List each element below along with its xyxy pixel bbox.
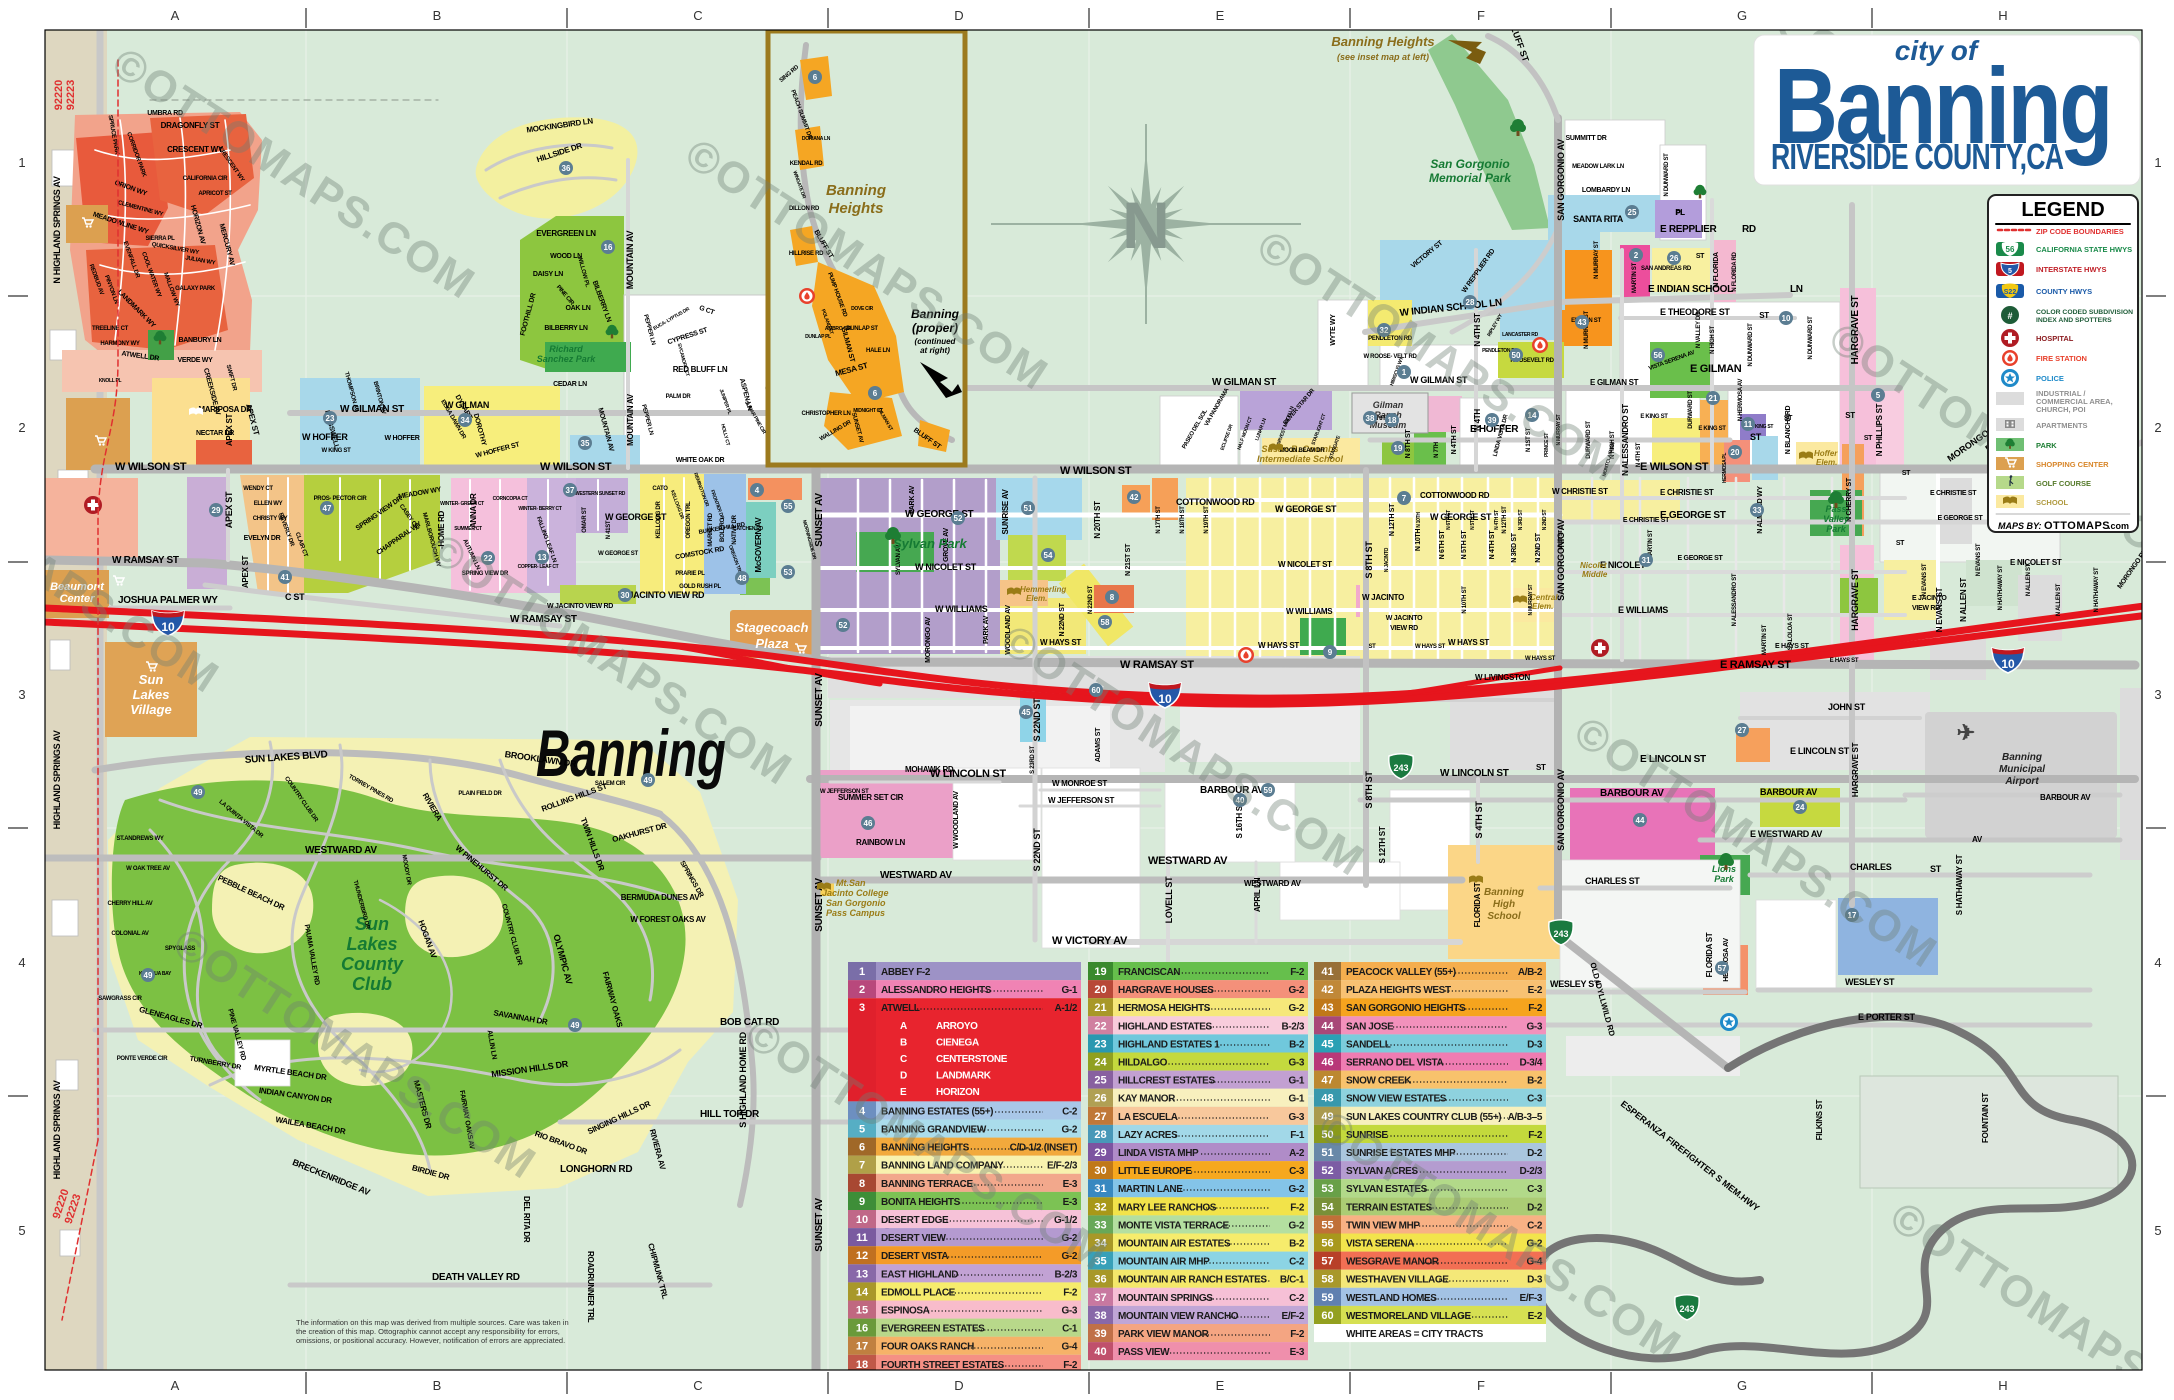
svg-text:PASS VIEW: PASS VIEW xyxy=(1118,1347,1170,1358)
svg-text:SANDELL: SANDELL xyxy=(1346,1039,1391,1050)
svg-text:N ALLEN ST: N ALLEN ST xyxy=(2026,563,2032,596)
svg-text:B: B xyxy=(433,1378,442,1393)
svg-text:TREELINE CT: TREELINE CT xyxy=(92,326,129,332)
svg-text:at right): at right) xyxy=(920,346,950,355)
svg-text:42: 42 xyxy=(1130,493,1139,502)
svg-text:E GEORGE ST: E GEORGE ST xyxy=(1660,510,1726,521)
svg-text:SUNRISE AV: SUNRISE AV xyxy=(1001,489,1010,535)
svg-text:Gilman: Gilman xyxy=(1373,400,1404,410)
svg-text:N 4TH ST: N 4TH ST xyxy=(1473,313,1482,347)
svg-text:N 10TH: N 10TH xyxy=(1415,529,1422,552)
svg-text:W GILMAN ST: W GILMAN ST xyxy=(1212,377,1276,388)
svg-text:S 4TH ST: S 4TH ST xyxy=(1474,801,1484,839)
svg-text:KAY MANOR: KAY MANOR xyxy=(1118,1094,1176,1105)
svg-text:E CHRISTIE ST: E CHRISTIE ST xyxy=(1660,488,1714,497)
svg-text:E REPPLIER: E REPPLIER xyxy=(1660,224,1718,235)
svg-text:Sanchez Park: Sanchez Park xyxy=(537,354,597,364)
svg-text:13: 13 xyxy=(856,1268,868,1280)
svg-text:HERMOSA PL: HERMOSA PL xyxy=(1722,453,1728,483)
svg-text:COTTONWOOD RD: COTTONWOOD RD xyxy=(1176,497,1255,507)
svg-text:37: 37 xyxy=(566,486,575,495)
svg-text:B: B xyxy=(900,1038,907,1049)
svg-text:W NICOLET ST: W NICOLET ST xyxy=(915,562,977,572)
svg-text:G-4: G-4 xyxy=(1062,1342,1078,1353)
svg-text:N 6TH ST: N 6TH ST xyxy=(1446,510,1452,530)
svg-text:G-2: G-2 xyxy=(1062,1125,1078,1136)
svg-text:FIRE STATION: FIRE STATION xyxy=(2036,354,2087,363)
svg-text:Nicolet: Nicolet xyxy=(1580,561,1607,570)
svg-text:31: 31 xyxy=(1642,556,1651,565)
svg-text:B-2: B-2 xyxy=(1289,1039,1305,1050)
svg-text:N 12TH ST: N 12TH ST xyxy=(1502,506,1508,534)
svg-text:CHARLES ST: CHARLES ST xyxy=(1585,876,1640,886)
svg-text:W HAYS ST: W HAYS ST xyxy=(1415,644,1446,650)
svg-text:F-2: F-2 xyxy=(1290,967,1305,978)
svg-text:N 19TH ST: N 19TH ST xyxy=(1204,506,1210,534)
svg-text:E RAMSAY ST: E RAMSAY ST xyxy=(1720,659,1791,671)
svg-text:PALM DR: PALM DR xyxy=(666,394,692,400)
svg-text:TWIN VIEW MHP: TWIN VIEW MHP xyxy=(1346,1220,1420,1231)
svg-text:N 7TH: N 7TH xyxy=(1434,442,1440,458)
svg-text:W WILSON ST: W WILSON ST xyxy=(1060,465,1132,477)
svg-text:1: 1 xyxy=(2154,155,2161,170)
svg-text:Banning: Banning xyxy=(1484,887,1524,898)
svg-text:18: 18 xyxy=(856,1359,868,1371)
svg-text:11: 11 xyxy=(1744,420,1753,429)
svg-text:E PORTER ST: E PORTER ST xyxy=(1858,1012,1916,1022)
svg-text:SUNSET AV: SUNSET AV xyxy=(814,673,825,727)
svg-text:E-3: E-3 xyxy=(1290,1347,1305,1358)
svg-text:ST: ST xyxy=(1784,415,1793,422)
svg-text:FILKINS ST: FILKINS ST xyxy=(1815,1099,1824,1140)
svg-text:56: 56 xyxy=(1654,351,1663,360)
svg-text:SAN GORGONIO AV: SAN GORGONIO AV xyxy=(1556,139,1566,221)
svg-text:WENDY CT: WENDY CT xyxy=(243,486,273,492)
svg-text:CORNCOPIA CT: CORNCOPIA CT xyxy=(493,496,528,502)
svg-text:E KING ST: E KING ST xyxy=(1640,414,1668,420)
svg-text:SHOPPING CENTER: SHOPPING CENTER xyxy=(2036,460,2109,469)
svg-text:D-2/3: D-2/3 xyxy=(1520,1166,1543,1177)
svg-text:A-2: A-2 xyxy=(1289,1148,1305,1159)
svg-text:ST: ST xyxy=(1536,763,1546,772)
svg-text:CIENEGA: CIENEGA xyxy=(936,1038,979,1049)
svg-text:Park: Park xyxy=(1714,874,1735,884)
svg-text:BARBOUR AV: BARBOUR AV xyxy=(1760,787,1817,797)
svg-text:8: 8 xyxy=(859,1178,865,1190)
svg-text:11: 11 xyxy=(856,1232,868,1244)
svg-text:Sun: Sun xyxy=(355,914,389,934)
svg-text:B-2: B-2 xyxy=(1527,1076,1543,1087)
svg-text:S HATHAWAY ST: S HATHAWAY ST xyxy=(1955,854,1964,915)
svg-text:RD: RD xyxy=(1742,224,1756,235)
svg-text:N 18TH ST: N 18TH ST xyxy=(1180,506,1186,534)
svg-text:San Gorgonio: San Gorgonio xyxy=(826,898,886,908)
svg-text:27: 27 xyxy=(1738,726,1747,735)
svg-text:E WILSON ST: E WILSON ST xyxy=(1640,461,1709,473)
svg-text:OAK LN: OAK LN xyxy=(565,305,590,312)
svg-text:PARK AV: PARK AV xyxy=(983,615,990,644)
svg-text:37: 37 xyxy=(1094,1292,1106,1304)
svg-text:LEGEND: LEGEND xyxy=(2021,199,2104,221)
svg-text:PROS- PECTOR CIR: PROS- PECTOR CIR xyxy=(314,496,368,502)
svg-text:N EVANS ST: N EVANS ST xyxy=(1922,563,1928,596)
svg-text:HARMONY WY: HARMONY WY xyxy=(100,341,140,347)
svg-text:HARGRAVE ST: HARGRAVE ST xyxy=(1851,742,1860,797)
svg-text:E GEORGE ST: E GEORGE ST xyxy=(1678,555,1724,562)
svg-text:40: 40 xyxy=(1094,1346,1106,1358)
svg-text:7: 7 xyxy=(1402,494,1407,503)
svg-text:G-3: G-3 xyxy=(1289,1112,1305,1123)
svg-text:DEATH VALLEY RD: DEATH VALLEY RD xyxy=(432,1272,520,1283)
svg-text:N FLORIDA RD: N FLORIDA RD xyxy=(1732,251,1738,291)
svg-text:WESTWARD AV: WESTWARD AV xyxy=(305,845,377,856)
svg-text:S 22ND ST: S 22ND ST xyxy=(1032,698,1042,742)
svg-text:42: 42 xyxy=(1321,984,1333,996)
svg-text:E-2: E-2 xyxy=(1528,1311,1543,1322)
svg-text:PARK AV: PARK AV xyxy=(909,485,916,514)
svg-text:E NICOLET ST: E NICOLET ST xyxy=(2010,558,2062,567)
svg-text:C-3: C-3 xyxy=(1527,1184,1543,1195)
svg-text:BILBERRY LN: BILBERRY LN xyxy=(544,325,588,332)
svg-text:F-2: F-2 xyxy=(1528,1130,1543,1141)
svg-text:N PHILLIPS ST: N PHILLIPS ST xyxy=(1875,403,1884,456)
svg-text:LAZY ACRES: LAZY ACRES xyxy=(1118,1130,1178,1141)
svg-text:BERMUDA DUNES AV: BERMUDA DUNES AV xyxy=(621,893,700,902)
svg-text:27: 27 xyxy=(1094,1111,1106,1123)
svg-text:LOMBARDY LN: LOMBARDY LN xyxy=(1582,187,1631,194)
svg-text:HILL TOP DR: HILL TOP DR xyxy=(700,1109,760,1120)
svg-text:WHITE OAK DR: WHITE OAK DR xyxy=(676,457,725,464)
svg-text:PONTE VERDE CIR: PONTE VERDE CIR xyxy=(117,1056,168,1062)
svg-text:SAN ANDREAS RD: SAN ANDREAS RD xyxy=(1641,266,1692,272)
svg-text:SALEM CIR: SALEM CIR xyxy=(595,781,626,787)
svg-text:MOUNTAIN AV: MOUNTAIN AV xyxy=(626,393,635,446)
svg-text:Banning: Banning xyxy=(2002,752,2042,763)
svg-text:W NICOLET ST: W NICOLET ST xyxy=(1278,560,1332,569)
svg-text:3: 3 xyxy=(2154,687,2161,702)
svg-text:G-3: G-3 xyxy=(1062,1306,1078,1317)
svg-text:N 10TH ST: N 10TH ST xyxy=(1462,586,1468,614)
svg-text:8: 8 xyxy=(1110,593,1115,602)
svg-text:W JEFFERSON ST: W JEFFERSON ST xyxy=(1048,796,1114,805)
svg-text:N 1ST ST: N 1ST ST xyxy=(1558,530,1564,550)
svg-text:E CHRISTIE ST: E CHRISTIE ST xyxy=(1930,490,1977,497)
svg-text:RAINBOW LN: RAINBOW LN xyxy=(856,838,906,847)
svg-text:18: 18 xyxy=(1388,416,1397,425)
svg-text:MOUNTAIN AV: MOUNTAIN AV xyxy=(625,230,635,289)
svg-text:LA ESCUELA: LA ESCUELA xyxy=(1118,1112,1178,1123)
svg-text:W HAYS ST: W HAYS ST xyxy=(1525,656,1556,662)
svg-text:30: 30 xyxy=(621,591,630,600)
svg-text:57: 57 xyxy=(1321,1256,1333,1268)
svg-text:12: 12 xyxy=(856,1250,868,1262)
svg-text:A-1/2: A-1/2 xyxy=(1055,1003,1078,1014)
svg-text:32: 32 xyxy=(1094,1201,1106,1213)
svg-text:Elem.: Elem. xyxy=(1816,458,1837,467)
svg-text:ROADRUNNER TRL: ROADRUNNER TRL xyxy=(586,1251,595,1323)
svg-text:F: F xyxy=(1477,1378,1485,1393)
svg-text:D-2: D-2 xyxy=(1527,1148,1543,1159)
svg-text:MOHAWK RD: MOHAWK RD xyxy=(905,765,954,774)
svg-text:D-3: D-3 xyxy=(1527,1039,1543,1050)
svg-text:14: 14 xyxy=(856,1286,869,1298)
svg-text:G-3: G-3 xyxy=(1289,1058,1305,1069)
svg-text:W VICTORY AV: W VICTORY AV xyxy=(1052,935,1128,947)
svg-text:SCHOOL: SCHOOL xyxy=(2036,498,2069,507)
svg-text:PEACOCK VALLEY (55+): PEACOCK VALLEY (55+) xyxy=(1346,967,1456,978)
svg-text:A: A xyxy=(171,1378,180,1393)
svg-text:17: 17 xyxy=(856,1341,868,1353)
svg-text:Village: Village xyxy=(130,702,171,717)
svg-text:B/C-1: B/C-1 xyxy=(1280,1275,1305,1286)
svg-text:S 8TH ST: S 8TH ST xyxy=(1364,771,1374,809)
svg-text:OREGON TRL: OREGON TRL xyxy=(686,501,692,539)
svg-text:MOUNTAIN AIR RANCH ESTATES: MOUNTAIN AIR RANCH ESTATES xyxy=(1118,1275,1267,1286)
svg-text:W KING ST: W KING ST xyxy=(322,448,352,454)
svg-text:ALESSANDRO HEIGHTS: ALESSANDRO HEIGHTS xyxy=(881,985,992,996)
svg-text:COLONIAL AV: COLONIAL AV xyxy=(111,931,149,937)
svg-text:HILLCREST ESTATES: HILLCREST ESTATES xyxy=(1118,1076,1215,1087)
svg-text:24: 24 xyxy=(1796,803,1805,812)
svg-text:49: 49 xyxy=(144,971,153,980)
svg-text:✈: ✈ xyxy=(1957,720,1975,745)
svg-text:C: C xyxy=(900,1054,907,1065)
svg-text:Banning: Banning xyxy=(826,182,886,199)
svg-text:G-2: G-2 xyxy=(1289,1003,1305,1014)
svg-text:WESTERN SUNSET RD: WESTERN SUNSET RD xyxy=(575,491,626,497)
svg-text:G-2: G-2 xyxy=(1289,1184,1305,1195)
svg-text:W LIVINGSTON: W LIVINGSTON xyxy=(1475,673,1530,682)
svg-text:N HATHAWAY ST: N HATHAWAY ST xyxy=(1998,565,2004,610)
svg-text:19: 19 xyxy=(1094,966,1106,978)
svg-text:High: High xyxy=(1493,899,1515,910)
svg-text:D: D xyxy=(954,8,963,23)
svg-text:CALIFORNIA CIR: CALIFORNIA CIR xyxy=(183,176,229,182)
svg-text:W WILLIAMS: W WILLIAMS xyxy=(935,604,988,614)
svg-text:W RAMSAY ST: W RAMSAY ST xyxy=(112,555,179,566)
svg-text:WESLEY ST: WESLEY ST xyxy=(1845,977,1895,987)
svg-text:Park: Park xyxy=(1826,524,1847,534)
svg-text:G-1: G-1 xyxy=(1062,985,1078,996)
svg-text:EAST HIGHLAND: EAST HIGHLAND xyxy=(881,1269,958,1280)
svg-text:19: 19 xyxy=(1394,444,1403,453)
svg-text:SAN GORGONIO AV: SAN GORGONIO AV xyxy=(1556,769,1566,851)
svg-text:W FOREST OAKS AV: W FOREST OAKS AV xyxy=(630,915,706,924)
svg-text:N 3RD ST: N 3RD ST xyxy=(1518,510,1524,531)
svg-text:B-2: B-2 xyxy=(1289,1239,1305,1250)
svg-text:D-2: D-2 xyxy=(1527,1202,1543,1213)
svg-text:MARTIN ST: MARTIN ST xyxy=(1762,624,1768,655)
svg-text:C: C xyxy=(693,1378,702,1393)
svg-text:26: 26 xyxy=(1670,254,1679,263)
svg-text:56: 56 xyxy=(1321,1238,1333,1250)
svg-text:INTERSTATE HWYS: INTERSTATE HWYS xyxy=(2036,265,2107,274)
svg-text:N MURRAY ST: N MURRAY ST xyxy=(1594,241,1600,279)
svg-text:Lakes: Lakes xyxy=(346,934,397,954)
svg-text:25: 25 xyxy=(1094,1075,1106,1087)
svg-text:3: 3 xyxy=(18,687,25,702)
svg-text:N HIGH ST: N HIGH ST xyxy=(1710,326,1716,354)
svg-text:ST: ST xyxy=(1368,644,1376,650)
svg-text:MONTE VISTA TERRACE: MONTE VISTA TERRACE xyxy=(1118,1220,1229,1231)
svg-text:FLORIDA ST: FLORIDA ST xyxy=(1705,932,1714,977)
svg-text:COLOR CODED SUBDIVISION: COLOR CODED SUBDIVISION xyxy=(2036,309,2133,316)
svg-text:MOON BEAM DR: MOON BEAM DR xyxy=(1280,448,1326,454)
svg-text:46: 46 xyxy=(1321,1057,1333,1069)
svg-text:PL: PL xyxy=(1675,208,1685,217)
svg-text:56: 56 xyxy=(2006,245,2015,254)
svg-text:Plaza: Plaza xyxy=(755,636,788,651)
svg-text:PARK VIEW MANOR: PARK VIEW MANOR xyxy=(1118,1329,1210,1340)
svg-text:E/F-2: E/F-2 xyxy=(1282,1311,1305,1322)
svg-text:CHRISTOPHER LN: CHRISTOPHER LN xyxy=(801,411,850,417)
svg-text:PARK: PARK xyxy=(2036,441,2057,450)
svg-text:ZIP CODE BOUNDARIES: ZIP CODE BOUNDARIES xyxy=(2036,227,2124,236)
svg-text:E HAYS ST: E HAYS ST xyxy=(1830,658,1859,664)
svg-text:MAPS BY:: MAPS BY: xyxy=(1998,521,2042,531)
svg-text:KELLOGG DR: KELLOGG DR xyxy=(656,501,662,539)
svg-text:W HOFFER: W HOFFER xyxy=(302,432,348,442)
svg-text:2: 2 xyxy=(2154,420,2161,435)
svg-text:9: 9 xyxy=(1328,648,1333,657)
svg-text:ST: ST xyxy=(1750,432,1762,442)
svg-text:E LINCOLN ST: E LINCOLN ST xyxy=(1790,746,1850,756)
svg-text:APRICOT ST: APRICOT ST xyxy=(198,191,232,197)
svg-text:B-2/3: B-2/3 xyxy=(1055,1269,1078,1280)
svg-text:6: 6 xyxy=(813,73,818,82)
svg-text:BONITA HEIGHTS: BONITA HEIGHTS xyxy=(881,1197,961,1208)
svg-text:E/F-2/3: E/F-2/3 xyxy=(1047,1161,1078,1172)
svg-text:43: 43 xyxy=(1321,1002,1333,1014)
svg-text:SUN LAKES COUNTRY CLUB (55+): SUN LAKES COUNTRY CLUB (55+) xyxy=(1346,1112,1501,1123)
svg-text:omissions, or positional accur: omissions, or positional accuracy. Howev… xyxy=(296,1336,565,1345)
svg-text:F: F xyxy=(1477,8,1485,23)
svg-text:MEADOW LARK LN: MEADOW LARK LN xyxy=(1572,164,1624,170)
svg-text:43: 43 xyxy=(1578,318,1587,327)
svg-text:the creation of this map. Otto: the creation of this map. Ottographix ca… xyxy=(296,1327,560,1336)
svg-text:Pass Campus: Pass Campus xyxy=(826,908,885,918)
svg-text:46: 46 xyxy=(864,819,873,828)
svg-text:LITTLE EUROPE: LITTLE EUROPE xyxy=(1118,1166,1192,1177)
svg-text:G-2: G-2 xyxy=(1289,985,1305,996)
svg-text:6: 6 xyxy=(859,1142,865,1154)
svg-text:OTTOMAPS: OTTOMAPS xyxy=(2044,520,2110,532)
svg-text:DUNLAP PL: DUNLAP PL xyxy=(805,334,831,340)
svg-text:FLORIDA ST: FLORIDA ST xyxy=(1473,882,1482,927)
svg-text:VERDE WY: VERDE WY xyxy=(178,357,214,364)
svg-text:4: 4 xyxy=(18,955,25,970)
svg-text:243: 243 xyxy=(1393,763,1408,773)
svg-text:CENTERSTONE: CENTERSTONE xyxy=(936,1054,1008,1065)
svg-text:N VALLEY DR: N VALLEY DR xyxy=(1696,311,1702,348)
svg-text:E: E xyxy=(1216,1378,1225,1393)
svg-text:13: 13 xyxy=(538,553,547,562)
svg-text:36: 36 xyxy=(1094,1274,1106,1286)
svg-text:MOUNTAIN AIR MHP: MOUNTAIN AIR MHP xyxy=(1118,1257,1210,1268)
svg-text:W GEORGE ST: W GEORGE ST xyxy=(1430,512,1492,522)
svg-text:GOLD RUSH PL: GOLD RUSH PL xyxy=(679,584,721,590)
svg-text:C-2: C-2 xyxy=(1289,1293,1305,1304)
svg-text:F-2: F-2 xyxy=(1063,1287,1078,1298)
svg-text:County: County xyxy=(341,954,404,974)
svg-text:N 20TH ST: N 20TH ST xyxy=(1093,501,1102,539)
svg-text:CALIFORNIA STATE HWYS: CALIFORNIA STATE HWYS xyxy=(2036,245,2132,254)
svg-text:W JACINTO: W JACINTO xyxy=(1362,593,1404,602)
svg-text:53: 53 xyxy=(1321,1183,1333,1195)
svg-text:INDEX AND SPOTTERS: INDEX AND SPOTTERS xyxy=(2036,317,2112,324)
svg-text:N HIGHLAND SPRINGS AV: N HIGHLAND SPRINGS AV xyxy=(52,176,62,284)
svg-text:N 8TH ST: N 8TH ST xyxy=(1405,429,1412,459)
svg-text:W WILLIAMS: W WILLIAMS xyxy=(1286,607,1333,616)
svg-text:Banning Heights: Banning Heights xyxy=(1331,34,1434,49)
svg-text:N 5TH ST: N 5TH ST xyxy=(1470,510,1476,530)
svg-text:GALAXY PARK: GALAXY PARK xyxy=(175,286,216,292)
svg-text:W LINCOLN ST: W LINCOLN ST xyxy=(1440,768,1509,779)
svg-text:N 21ST ST: N 21ST ST xyxy=(1125,543,1132,576)
svg-text:E: E xyxy=(1216,8,1225,23)
svg-text:49: 49 xyxy=(194,788,203,797)
svg-text:SAN JOSE: SAN JOSE xyxy=(1346,1021,1394,1032)
svg-text:C/D-1/2 (INSET): C/D-1/2 (INSET) xyxy=(1010,1143,1077,1154)
svg-text:N ALLEN ST: N ALLEN ST xyxy=(1959,578,1968,622)
svg-text:5: 5 xyxy=(18,1223,25,1238)
svg-text:WINTER- BERRY CT: WINTER- BERRY CT xyxy=(518,506,562,512)
svg-text:38: 38 xyxy=(1094,1310,1106,1322)
svg-text:ADAMS ST: ADAMS ST xyxy=(1095,727,1102,762)
svg-text:20: 20 xyxy=(1731,448,1740,457)
svg-text:24: 24 xyxy=(1094,1057,1107,1069)
svg-text:N DUNWARD ST: N DUNWARD ST xyxy=(1808,316,1814,360)
svg-text:N EVANS ST: N EVANS ST xyxy=(1935,587,1944,632)
svg-text:N 2ND ST: N 2ND ST xyxy=(1535,532,1542,563)
svg-text:16: 16 xyxy=(856,1323,868,1335)
svg-text:N: N xyxy=(1122,188,1170,262)
svg-text:DEL RITA DR: DEL RITA DR xyxy=(522,1196,531,1243)
svg-text:W JACINTO: W JACINTO xyxy=(1386,615,1423,622)
svg-text:CATCHEN RD: CATCHEN RD xyxy=(733,526,763,532)
svg-text:DESERT EDGE: DESERT EDGE xyxy=(881,1215,949,1226)
svg-text:G-1: G-1 xyxy=(1289,1076,1305,1087)
svg-text:W HAYS ST: W HAYS ST xyxy=(1258,641,1299,650)
svg-text:N DUNWARD ST: N DUNWARD ST xyxy=(1664,153,1670,197)
svg-text:S 22ND ST: S 22ND ST xyxy=(1032,828,1042,872)
svg-text:WESTWARD AV: WESTWARD AV xyxy=(1148,855,1228,867)
svg-text:The information on this map wa: The information on this map was derived … xyxy=(296,1318,569,1327)
svg-text:LANDMARK: LANDMARK xyxy=(936,1071,992,1082)
svg-text:COPPER- LEAF CT: COPPER- LEAF CT xyxy=(518,564,559,570)
svg-text:D: D xyxy=(900,1071,907,1082)
svg-text:S 23RD ST: S 23RD ST xyxy=(1030,746,1036,774)
svg-text:ATWELL: ATWELL xyxy=(881,1003,920,1014)
svg-text:ELLEN WY: ELLEN WY xyxy=(254,501,283,507)
svg-text:2: 2 xyxy=(1634,251,1639,260)
svg-text:C-2: C-2 xyxy=(1062,1106,1078,1117)
svg-text:53: 53 xyxy=(784,568,793,577)
svg-text:HIGHLAND SPRINGS AV: HIGHLAND SPRINGS AV xyxy=(52,1080,62,1179)
svg-text:20: 20 xyxy=(1094,984,1106,996)
svg-text:McGOVERN AV: McGOVERN AV xyxy=(754,517,763,573)
svg-text:3: 3 xyxy=(859,1002,865,1014)
svg-text:Club: Club xyxy=(352,974,392,994)
svg-text:DORIANA LN: DORIANA LN xyxy=(802,136,831,142)
svg-text:52: 52 xyxy=(954,514,963,523)
svg-text:SANTA RITA: SANTA RITA xyxy=(1573,214,1624,224)
svg-text:58: 58 xyxy=(1321,1274,1333,1286)
svg-text:C: C xyxy=(693,8,702,23)
svg-text:COUNTY HWYS: COUNTY HWYS xyxy=(2036,287,2092,296)
svg-text:S 12TH ST: S 12TH ST xyxy=(1378,826,1387,863)
svg-text:LONGHORN RD: LONGHORN RD xyxy=(560,1164,632,1175)
